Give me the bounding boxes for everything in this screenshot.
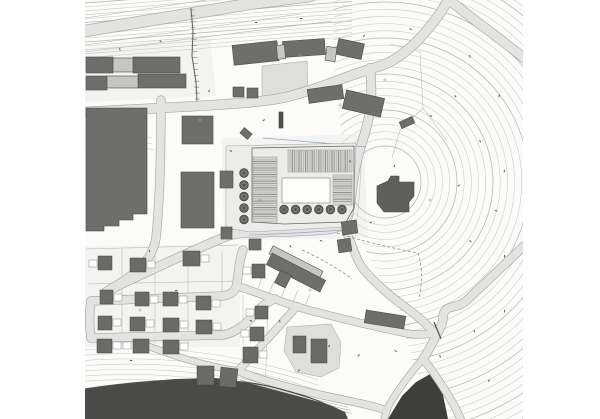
tree <box>240 169 249 178</box>
building <box>337 238 352 253</box>
road <box>90 301 92 338</box>
garage <box>113 342 121 349</box>
building <box>138 74 186 88</box>
building <box>220 171 233 188</box>
tree-trunk-dot <box>330 209 331 210</box>
garage <box>179 296 187 303</box>
survey-mark <box>255 22 257 23</box>
house <box>243 347 258 363</box>
house <box>163 292 178 306</box>
house-lot <box>197 366 214 385</box>
house <box>130 317 145 331</box>
courtyard <box>282 178 330 203</box>
plan-root <box>68 0 600 419</box>
survey-mark <box>130 360 132 361</box>
house <box>311 339 327 363</box>
garage <box>89 260 97 267</box>
garage <box>213 323 221 330</box>
tree <box>314 205 323 214</box>
building <box>221 227 232 239</box>
roof-stripe-base <box>288 150 352 172</box>
garage <box>212 300 220 307</box>
building <box>133 57 180 73</box>
survey-mark <box>504 255 505 257</box>
tree <box>291 205 300 214</box>
tree <box>240 215 249 224</box>
house <box>250 327 264 341</box>
survey-mark <box>175 290 177 291</box>
house <box>100 290 113 304</box>
tree-trunk-dot <box>318 209 319 210</box>
house <box>293 336 306 353</box>
garage <box>146 320 154 327</box>
building <box>341 220 358 235</box>
garage <box>241 330 249 337</box>
house <box>98 256 112 270</box>
large-building <box>86 108 147 231</box>
house <box>163 340 179 354</box>
building <box>233 87 244 97</box>
house-lot <box>219 367 238 388</box>
site-plan-canvas <box>0 0 600 419</box>
building <box>113 58 133 72</box>
tree-trunk-dot <box>307 209 308 210</box>
garage <box>123 342 131 349</box>
house <box>98 316 112 330</box>
building <box>279 112 283 128</box>
survey-mark <box>504 310 505 312</box>
house <box>255 306 268 319</box>
garage <box>147 261 155 268</box>
house <box>196 296 211 310</box>
building <box>282 39 325 58</box>
garage <box>114 294 122 301</box>
building <box>86 57 113 73</box>
house-lot <box>293 336 306 353</box>
building <box>325 46 337 61</box>
tree-trunk-dot <box>341 209 342 210</box>
house <box>130 258 146 272</box>
tree-trunk-dot <box>243 196 244 197</box>
tree-trunk-dot <box>283 209 284 210</box>
tree-trunk-dot <box>243 184 244 185</box>
tree <box>338 205 347 214</box>
garage <box>113 319 121 326</box>
tree <box>240 181 249 190</box>
tree <box>240 192 249 201</box>
tree <box>280 205 289 214</box>
tree-trunk-dot <box>295 209 296 210</box>
building <box>86 76 107 90</box>
roof-stripes <box>253 157 277 222</box>
site-plan-svg <box>0 0 600 419</box>
house <box>196 320 212 334</box>
garage <box>246 309 254 316</box>
survey-mark <box>300 18 302 19</box>
garage <box>259 351 267 358</box>
building <box>181 172 214 228</box>
tree <box>240 204 249 213</box>
garage <box>180 343 188 350</box>
survey-mark <box>149 250 150 252</box>
tree-trunk-dot <box>243 172 244 173</box>
house <box>133 339 149 353</box>
house <box>163 318 179 332</box>
house <box>183 251 200 266</box>
garage <box>150 296 158 303</box>
garage <box>180 321 188 328</box>
building <box>107 76 138 88</box>
main-building-complex <box>226 143 356 232</box>
tree-trunk-dot <box>243 219 244 220</box>
building <box>182 116 213 144</box>
building <box>249 239 261 250</box>
garage <box>243 267 251 274</box>
house <box>97 339 112 353</box>
building <box>276 45 285 60</box>
building <box>232 41 279 66</box>
house <box>135 292 149 306</box>
building <box>247 88 258 98</box>
roof-stripes <box>288 150 352 172</box>
house <box>197 366 214 385</box>
house <box>219 367 238 388</box>
house-lot <box>311 339 327 363</box>
tree <box>326 205 335 214</box>
tree-trunk-dot <box>243 207 244 208</box>
garage <box>201 255 209 262</box>
tree <box>303 205 312 214</box>
roof-stripes <box>333 175 352 205</box>
house <box>252 264 265 278</box>
